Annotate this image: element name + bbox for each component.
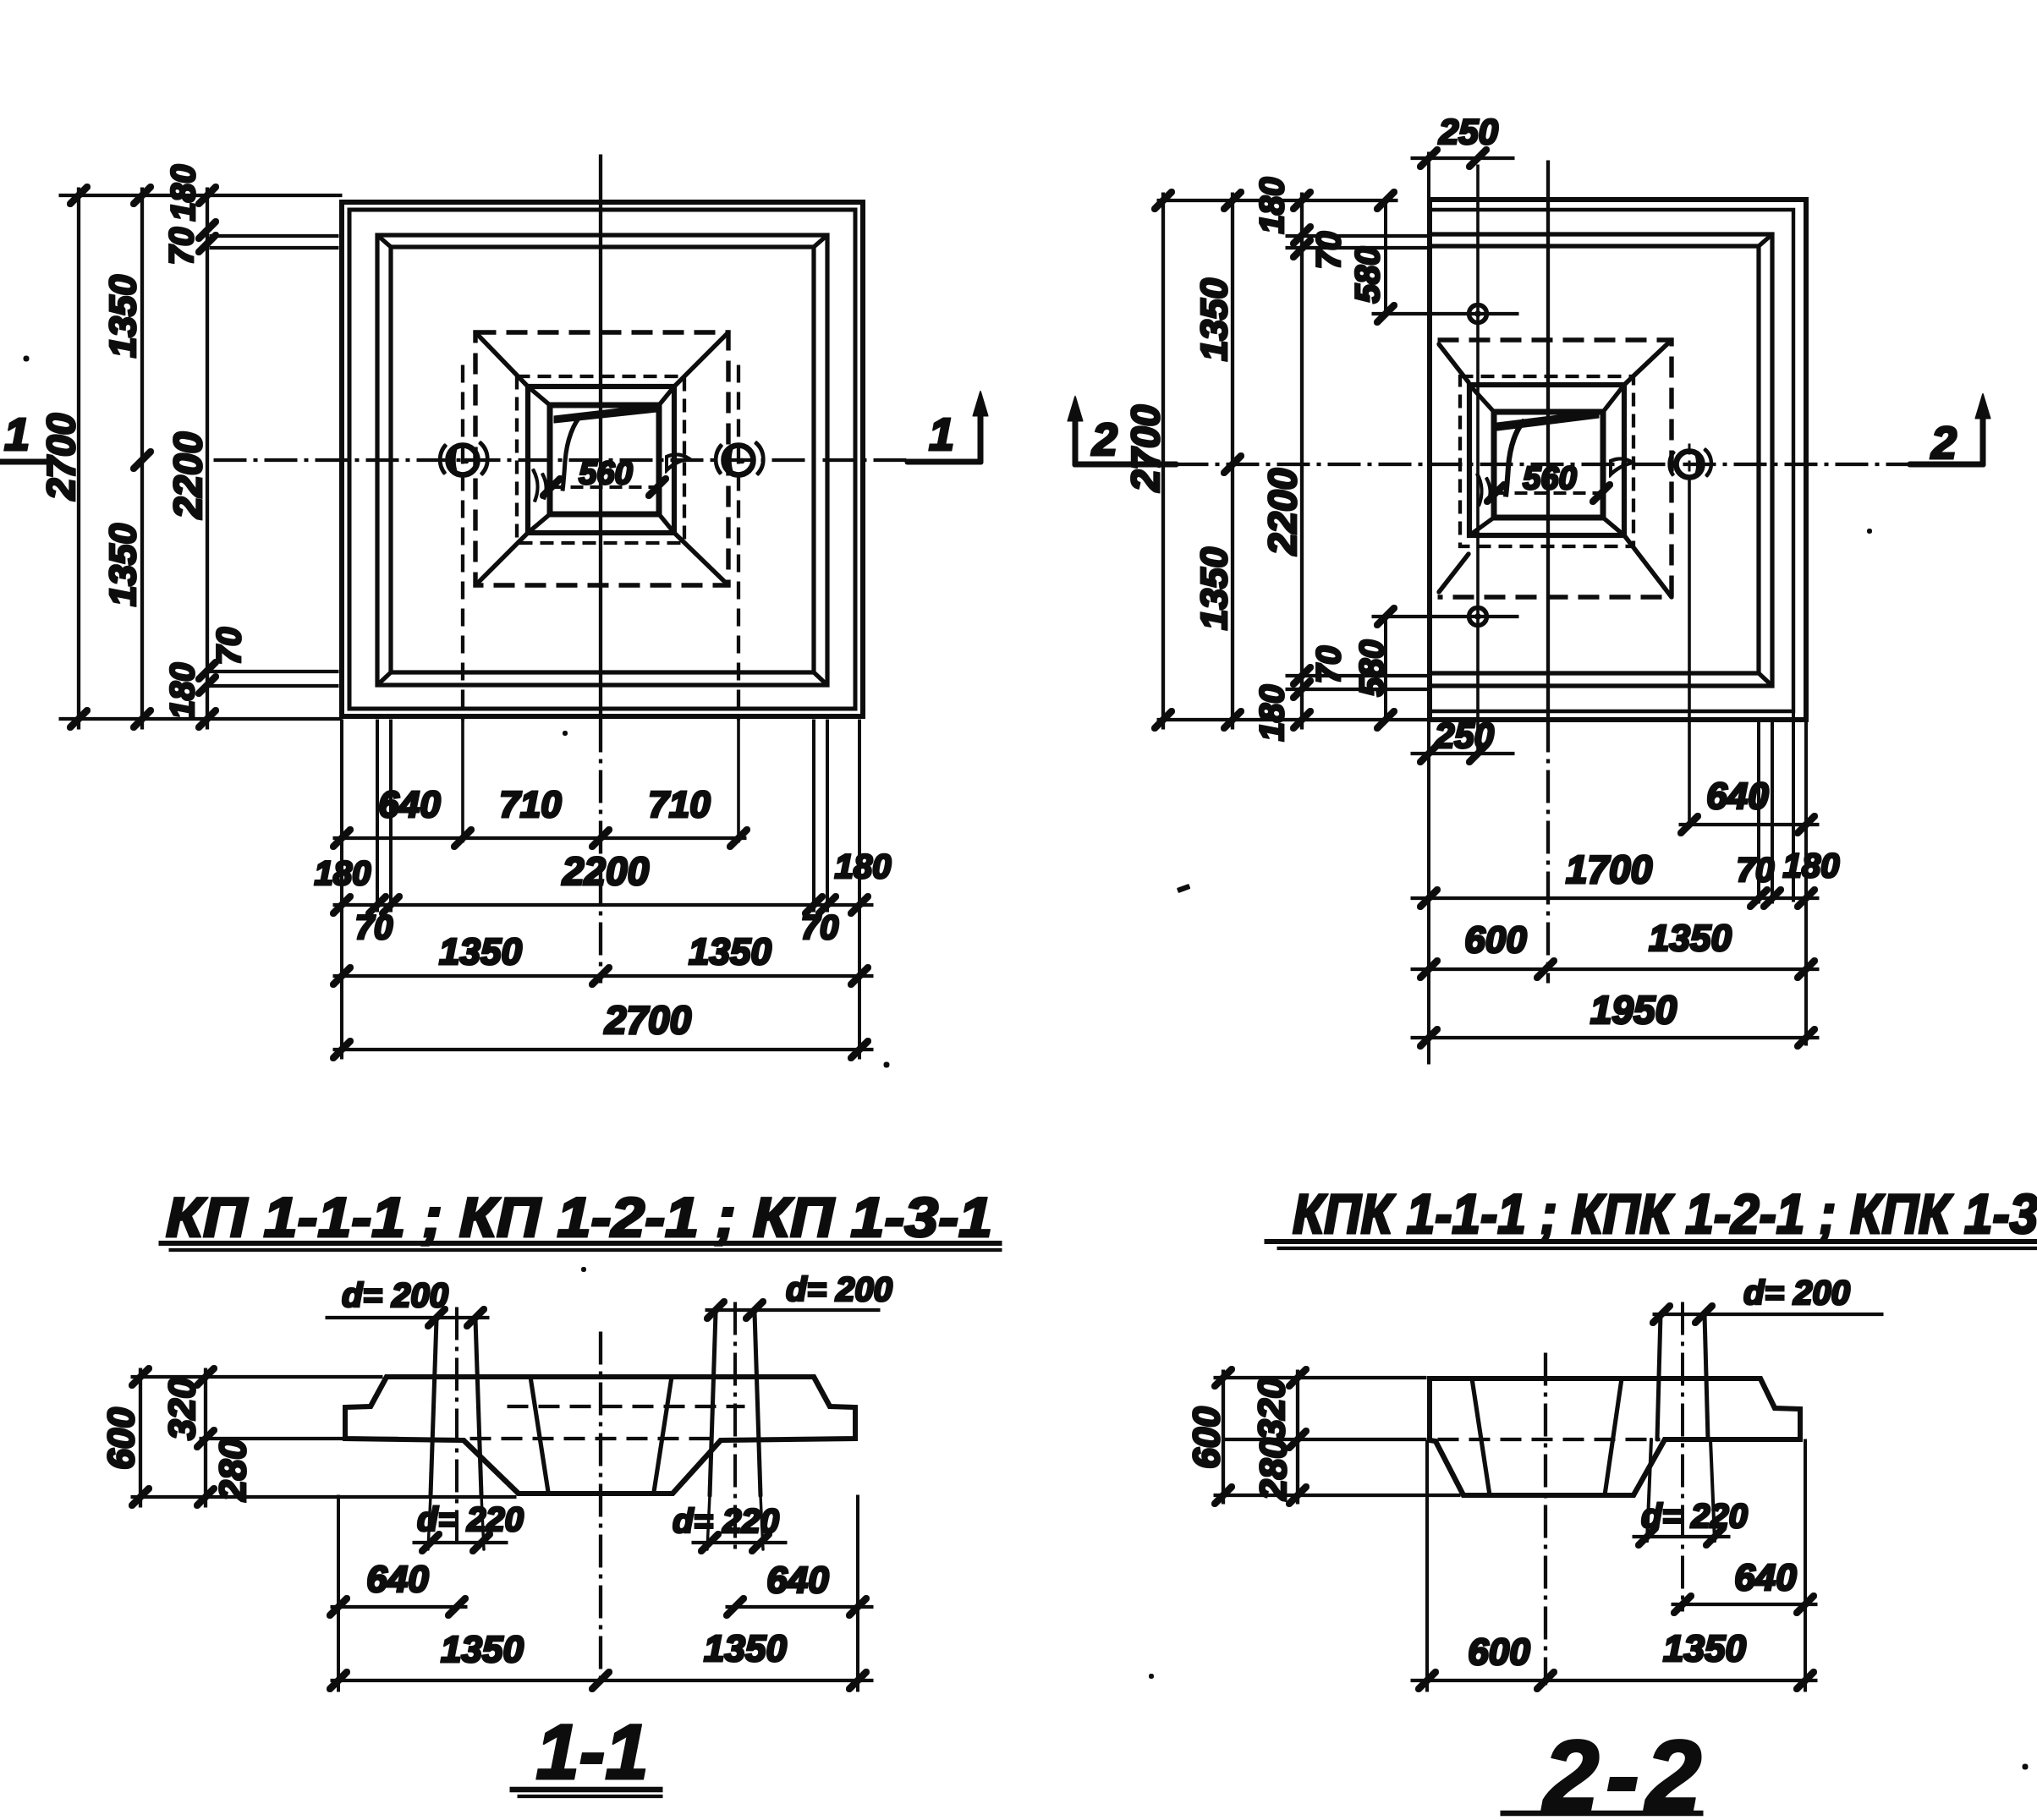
svg-text:640: 640: [766, 1560, 829, 1601]
svg-text:640: 640: [366, 1559, 429, 1600]
svg-text:2: 2: [1091, 414, 1117, 465]
svg-text:1350: 1350: [689, 931, 771, 973]
svg-text:180: 180: [1783, 847, 1840, 885]
svg-text:640: 640: [378, 784, 441, 825]
svg-text:600: 600: [1186, 1406, 1227, 1469]
svg-text:320: 320: [162, 1378, 203, 1440]
svg-text:70: 70: [1737, 852, 1775, 889]
svg-text:1-1: 1-1: [536, 1709, 649, 1795]
svg-text:2200: 2200: [562, 849, 650, 893]
svg-text:2200: 2200: [166, 431, 210, 519]
svg-text:1350: 1350: [441, 1629, 524, 1670]
svg-text:70: 70: [211, 628, 248, 666]
svg-text:560: 560: [1523, 461, 1576, 496]
svg-text:180: 180: [835, 848, 892, 885]
svg-text:70: 70: [1310, 646, 1348, 684]
svg-text:70: 70: [355, 909, 393, 946]
svg-text:d= 200: d= 200: [786, 1271, 892, 1308]
svg-text:180: 180: [1254, 685, 1291, 742]
svg-text:710: 710: [648, 784, 711, 825]
svg-text:1350: 1350: [439, 931, 522, 973]
svg-text:2700: 2700: [1123, 404, 1167, 492]
svg-text:2-2: 2-2: [1542, 1720, 1709, 1820]
svg-text:250: 250: [1438, 112, 1498, 151]
svg-text:280: 280: [1253, 1438, 1294, 1501]
svg-text:1350: 1350: [1194, 278, 1235, 361]
svg-text:280: 280: [212, 1439, 254, 1502]
svg-text:70: 70: [801, 909, 839, 946]
svg-text:d= 200: d= 200: [1743, 1275, 1850, 1312]
svg-text:d= 220: d= 220: [417, 1501, 524, 1538]
svg-text:1350: 1350: [1194, 547, 1235, 630]
svg-text:1350: 1350: [1663, 1628, 1746, 1669]
svg-text:320: 320: [1251, 1378, 1293, 1440]
svg-text:d= 220: d= 220: [1641, 1498, 1748, 1535]
svg-text:250: 250: [1434, 715, 1494, 755]
svg-text:d= 220: d= 220: [673, 1503, 779, 1540]
svg-text:1350: 1350: [102, 524, 144, 606]
svg-text:2700: 2700: [604, 998, 692, 1042]
svg-text:1350: 1350: [102, 275, 144, 358]
svg-text:2200: 2200: [1260, 468, 1304, 556]
svg-text:d= 200: d= 200: [342, 1277, 448, 1314]
svg-text:1: 1: [4, 409, 30, 460]
svg-text:640: 640: [1734, 1557, 1797, 1598]
svg-text:1700: 1700: [1566, 847, 1653, 891]
svg-text:710: 710: [499, 784, 562, 825]
svg-text:1350: 1350: [1649, 918, 1732, 959]
svg-text:1350: 1350: [704, 1628, 787, 1669]
svg-text:КПК 1-1-1 ; КПК 1-2-1 ; КПК 1-: КПК 1-1-1 ; КПК 1-2-1 ; КПК 1-3-1: [1293, 1182, 2037, 1245]
svg-text:2700: 2700: [39, 413, 83, 501]
svg-text:600: 600: [1468, 1631, 1530, 1673]
svg-text:180: 180: [165, 165, 202, 222]
svg-text:КП 1-1-1 ; КП 1-2-1 ; КП 1-3-1: КП 1-1-1 ; КП 1-2-1 ; КП 1-3-1: [166, 1186, 992, 1248]
svg-text:1: 1: [929, 409, 954, 460]
svg-text:180: 180: [1254, 178, 1291, 234]
svg-text:70: 70: [163, 227, 200, 266]
svg-text:2: 2: [1930, 418, 1957, 469]
svg-text:600: 600: [101, 1407, 142, 1470]
svg-text:600: 600: [1464, 919, 1527, 961]
svg-text:1950: 1950: [1590, 988, 1677, 1032]
svg-text:580: 580: [1349, 247, 1386, 304]
svg-text:180: 180: [164, 663, 201, 720]
